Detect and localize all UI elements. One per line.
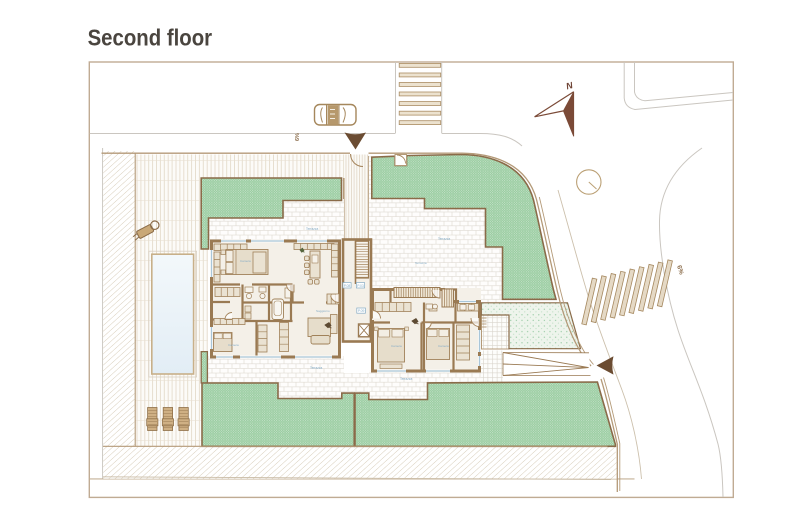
svg-text:P.08: P.08 (344, 284, 351, 288)
svg-text:6%: 6% (295, 133, 301, 141)
svg-text:Terrazza: Terrazza (415, 261, 427, 265)
svg-text:Camera: Camera (391, 344, 402, 348)
svg-text:P.03: P.03 (357, 284, 364, 288)
svg-text:Camera: Camera (240, 259, 251, 263)
svg-text:Terrazza: Terrazza (310, 366, 322, 370)
svg-text:P.09: P.09 (358, 309, 365, 313)
svg-text:Camera: Camera (228, 343, 239, 347)
svg-text:Terrazza: Terrazza (306, 227, 318, 231)
svg-text:Soggiorno: Soggiorno (316, 309, 330, 313)
svg-text:Terrazza: Terrazza (438, 237, 450, 241)
svg-text:Terrazza: Terrazza (400, 377, 412, 381)
svg-text:Second floor: Second floor (88, 25, 213, 51)
svg-text:Camera: Camera (438, 344, 449, 348)
